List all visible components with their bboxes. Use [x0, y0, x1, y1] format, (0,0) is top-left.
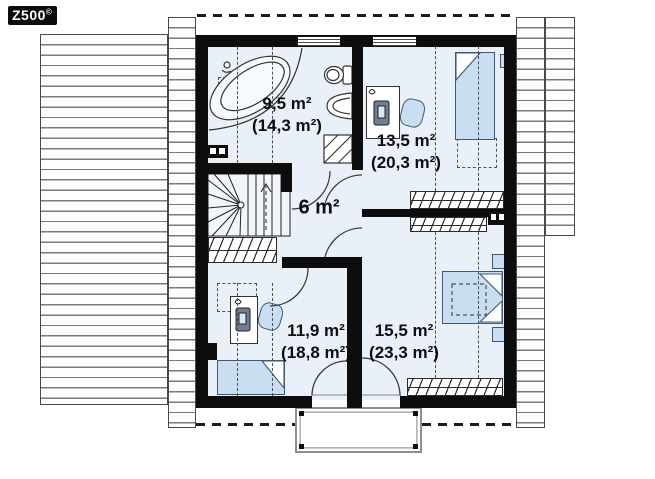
wall-stub-bottom-left	[204, 343, 217, 360]
room-label-bathroom-area: 9,5 m²	[262, 94, 311, 114]
room-label-bathroom-total: (14,3 m²)	[252, 116, 322, 136]
floorplan-canvas: 9,5 m² (14,3 m²) 13,5 m² (20,3 m²) 6 m² …	[0, 0, 655, 479]
plan-detail-overlay	[0, 0, 655, 479]
height-line	[237, 47, 238, 163]
z500-logo-copyright: ©	[46, 7, 52, 16]
room-label-bedroom-bottom-right-total: (23,3 m²)	[369, 343, 439, 363]
wall-hall-south	[282, 257, 362, 268]
wall-bedrooms-right-divider	[362, 209, 504, 217]
wall-bathroom-south	[204, 163, 292, 174]
shower-icon	[324, 135, 352, 163]
room-label-bedroom-top-right-area: 13,5 m²	[377, 131, 436, 151]
wall-stair-corner	[281, 174, 292, 192]
staircase	[208, 174, 290, 236]
bathtub-faucet	[224, 62, 230, 68]
height-line	[478, 46, 479, 191]
bedroom-bottom-left-door-arc	[270, 268, 308, 306]
room-label-hall-area: 6 m²	[298, 197, 339, 220]
z500-logo: Z500©	[8, 6, 57, 25]
room-label-bedroom-bottom-left-area: 11,9 m²	[287, 321, 345, 341]
chimney	[207, 145, 228, 158]
desk-lamp-icon	[369, 90, 375, 95]
z500-logo-text: Z500	[12, 7, 46, 23]
chimney	[488, 209, 507, 225]
room-label-bedroom-bottom-left-total: (18,8 m²)	[281, 343, 351, 363]
room-label-bedroom-top-right-total: (20,3 m²)	[371, 153, 441, 173]
wall-outer-top	[196, 35, 516, 47]
height-line	[272, 283, 273, 396]
computer-icon	[374, 101, 389, 125]
wall-outer-bottom-right	[400, 396, 516, 408]
desk-lamp-icon	[235, 300, 241, 305]
wall-bedrooms-bottom-divider	[347, 268, 362, 396]
window-bathroom	[297, 36, 341, 47]
toilet-icon	[325, 66, 353, 84]
wall-bathroom-east	[352, 47, 363, 170]
washbasin-icon	[327, 93, 352, 119]
room-label-bedroom-bottom-right-area: 15,5 m²	[375, 321, 434, 341]
window-bedroom-top-right	[372, 36, 417, 47]
bed-mattress-outline	[452, 284, 486, 315]
height-line	[478, 232, 479, 378]
wall-outer-bottom-pier	[347, 396, 362, 408]
wall-outer-bottom-left	[196, 396, 312, 408]
height-line	[237, 283, 238, 396]
computer-icon	[236, 308, 250, 331]
